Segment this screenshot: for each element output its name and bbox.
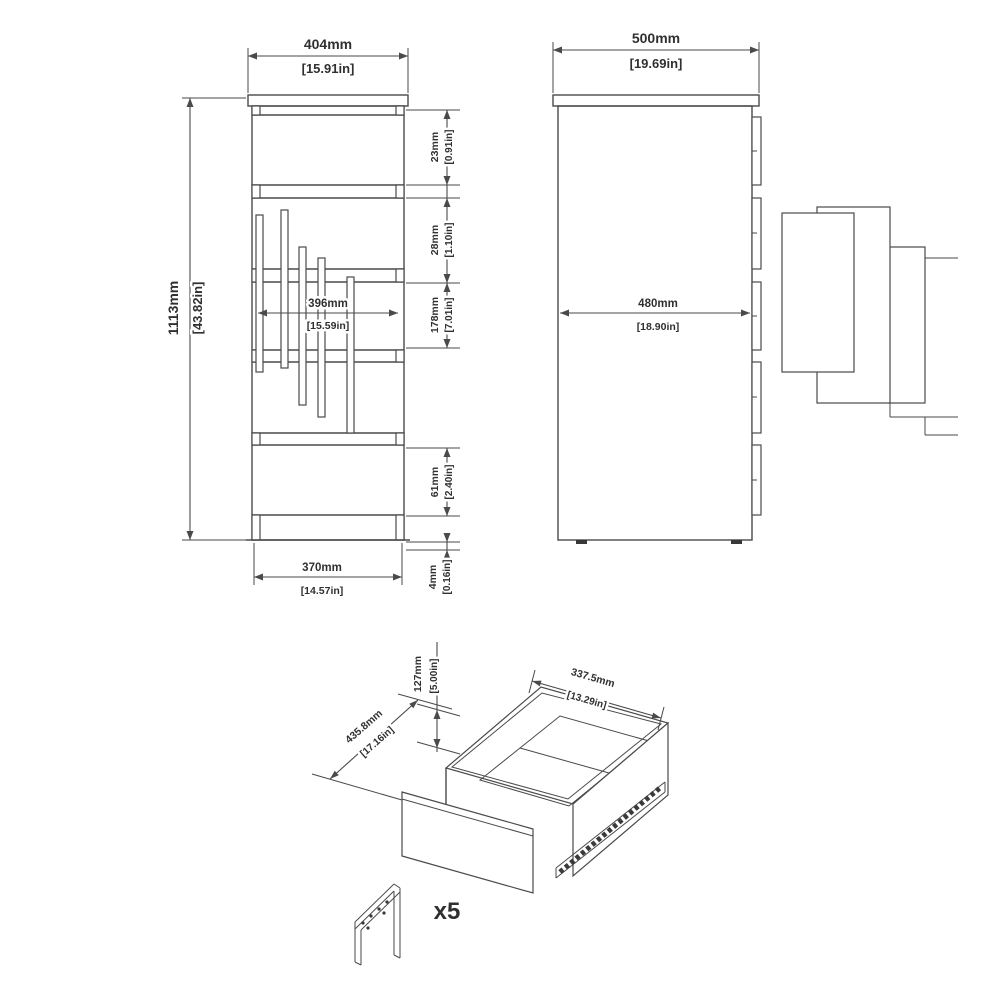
front-base-dimension: 370mm [14.57in] (254, 543, 402, 597)
front-handle-dimension: 396mm [15.59in] (258, 298, 398, 332)
front-gap-section-mm: 28mm (429, 225, 441, 255)
front-top-section-mm: 23mm (429, 132, 441, 162)
front-height-mm: 1113mm (165, 281, 181, 336)
side-inner-depth-dimension: 480mm [18.90in] (560, 298, 750, 333)
drawer-isometric: 127mm [5.00in] 435.8mm [17.16in] 337.5mm… (312, 642, 668, 893)
front-gap-section-in: [1.10in] (444, 222, 455, 257)
front-drawer-front-in: [7.01in] (444, 297, 455, 332)
side-view: 500mm [19.69in] 480mm [18.90in] (553, 30, 761, 544)
side-inner-depth-mm: 480mm (638, 298, 678, 310)
drawer-height-mm: 127mm (412, 656, 424, 692)
side-inner-depth-in: [18.90in] (637, 321, 680, 333)
drawer-width-mm: 337.5mm (570, 666, 617, 690)
front-plinth-mm: 61mm (429, 467, 441, 497)
side-depth-dimension: 500mm [19.69in] (553, 30, 759, 93)
drawer-depth-dimension: 435.8mm [17.16in] (312, 694, 452, 800)
front-top-section-in: [0.91in] (444, 129, 455, 164)
detail-panel-right (888, 247, 925, 403)
detail-panel-left (782, 213, 854, 372)
panel-detail (782, 207, 958, 435)
side-foot-left (576, 540, 587, 544)
drawer-height-in: [5.00in] (429, 658, 440, 693)
front-width-in: [15.91in] (302, 61, 355, 76)
side-top-panel (553, 95, 759, 106)
front-height-dimension: 1113mm [43.82in] (165, 98, 246, 540)
front-width-mm: 404mm (304, 36, 352, 52)
furniture-dimension-diagram: 404mm [15.91in] 1113mm [43.82in] 396mm [… (0, 0, 1000, 1000)
front-foot-mm: 4mm (427, 565, 439, 590)
front-drawer-front-mm: 178mm (429, 297, 441, 333)
side-drawer-fronts (752, 117, 761, 515)
front-base-mm: 370mm (302, 562, 342, 574)
front-height-in: [43.82in] (190, 282, 205, 335)
hardware-quantity-label: x5 (434, 898, 461, 925)
drawer-height-dimension: 127mm [5.00in] (412, 642, 460, 754)
front-plinth-in: [2.40in] (444, 464, 455, 499)
diagram-canvas: 404mm [15.91in] 1113mm [43.82in] 396mm [… (0, 0, 1000, 1000)
side-depth-mm: 500mm (632, 30, 680, 46)
front-width-dimension: 404mm [15.91in] (248, 36, 408, 93)
drawer-front-panel (402, 792, 533, 893)
front-handle-mm: 396mm (308, 298, 348, 310)
front-segment-dimensions: 23mm [0.91in] 28mm [1.10in] 178mm [7.01i… (406, 110, 460, 595)
front-base-in: [14.57in] (301, 585, 344, 597)
hardware-bracket: x5 (355, 884, 460, 965)
side-depth-in: [19.69in] (630, 56, 683, 71)
front-top-panel (248, 95, 408, 106)
front-view: 404mm [15.91in] 1113mm [43.82in] 396mm [… (165, 36, 460, 597)
front-foot-in: [0.16in] (442, 559, 453, 594)
front-handle-in: [15.59in] (307, 320, 350, 332)
side-foot-right (731, 540, 742, 544)
